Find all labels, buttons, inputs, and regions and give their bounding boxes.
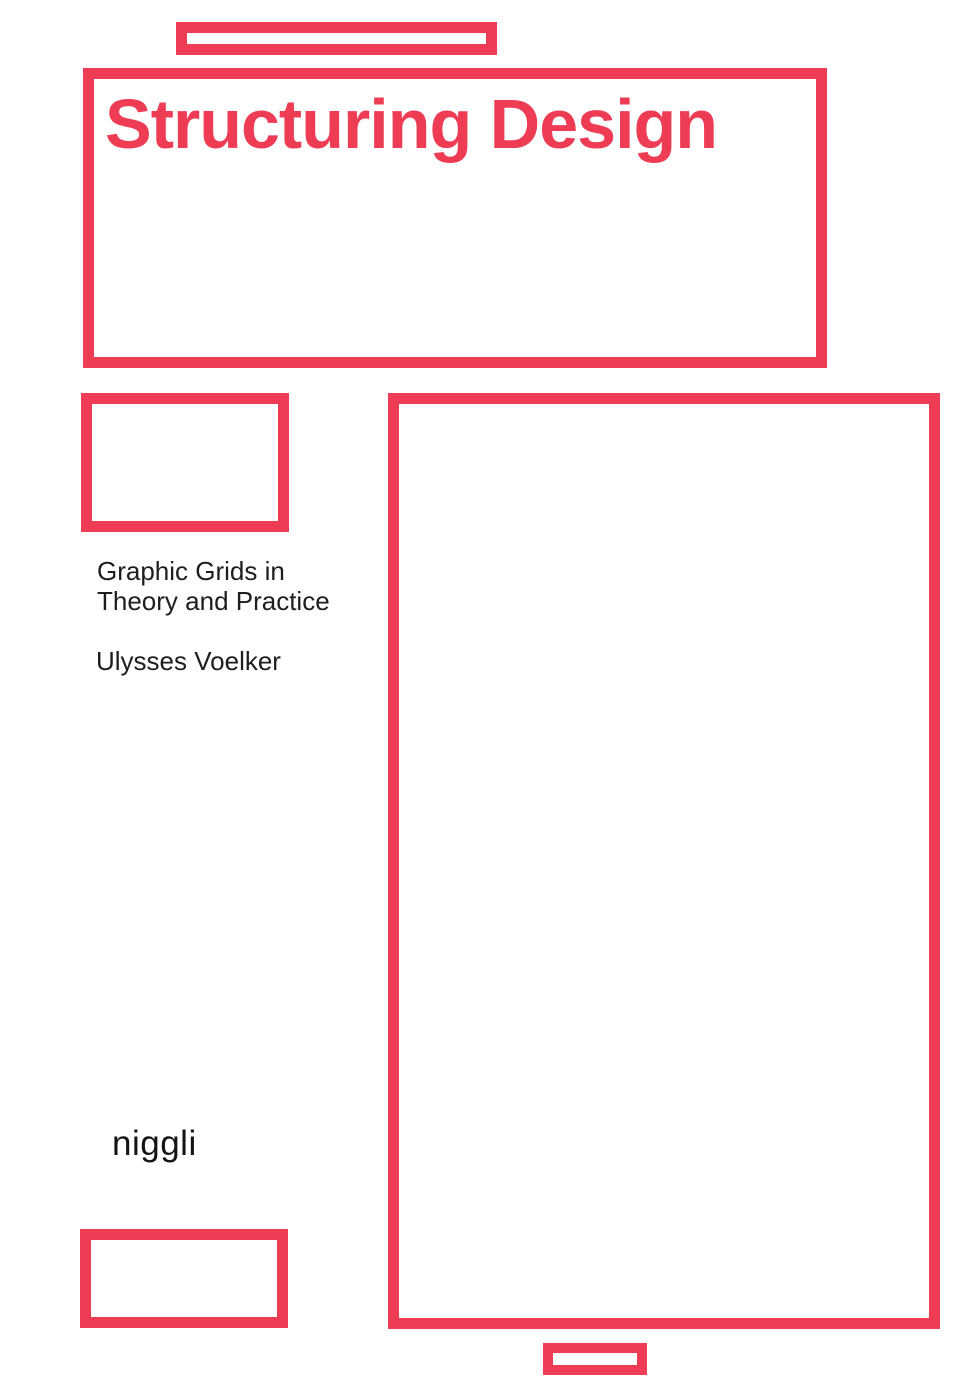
bottom-slot-frame	[543, 1343, 647, 1375]
bottom-left-frame	[80, 1229, 288, 1328]
publisher-logo: niggli	[112, 1126, 197, 1161]
small-frame-left	[81, 393, 289, 532]
author-name: Ulysses Voelker	[96, 646, 281, 676]
subtitle-line-2: Theory and Practice	[97, 586, 330, 616]
book-cover: Structuring Design Graphic Grids in Theo…	[0, 0, 980, 1400]
book-subtitle: Graphic Grids in Theory and Practice	[97, 556, 330, 616]
title-frame: Structuring Design	[83, 68, 827, 368]
subtitle-line-1: Graphic Grids in	[97, 556, 330, 586]
top-slot-frame	[176, 22, 497, 55]
tall-frame-right	[388, 393, 940, 1329]
book-title: Structuring Design	[105, 89, 717, 159]
